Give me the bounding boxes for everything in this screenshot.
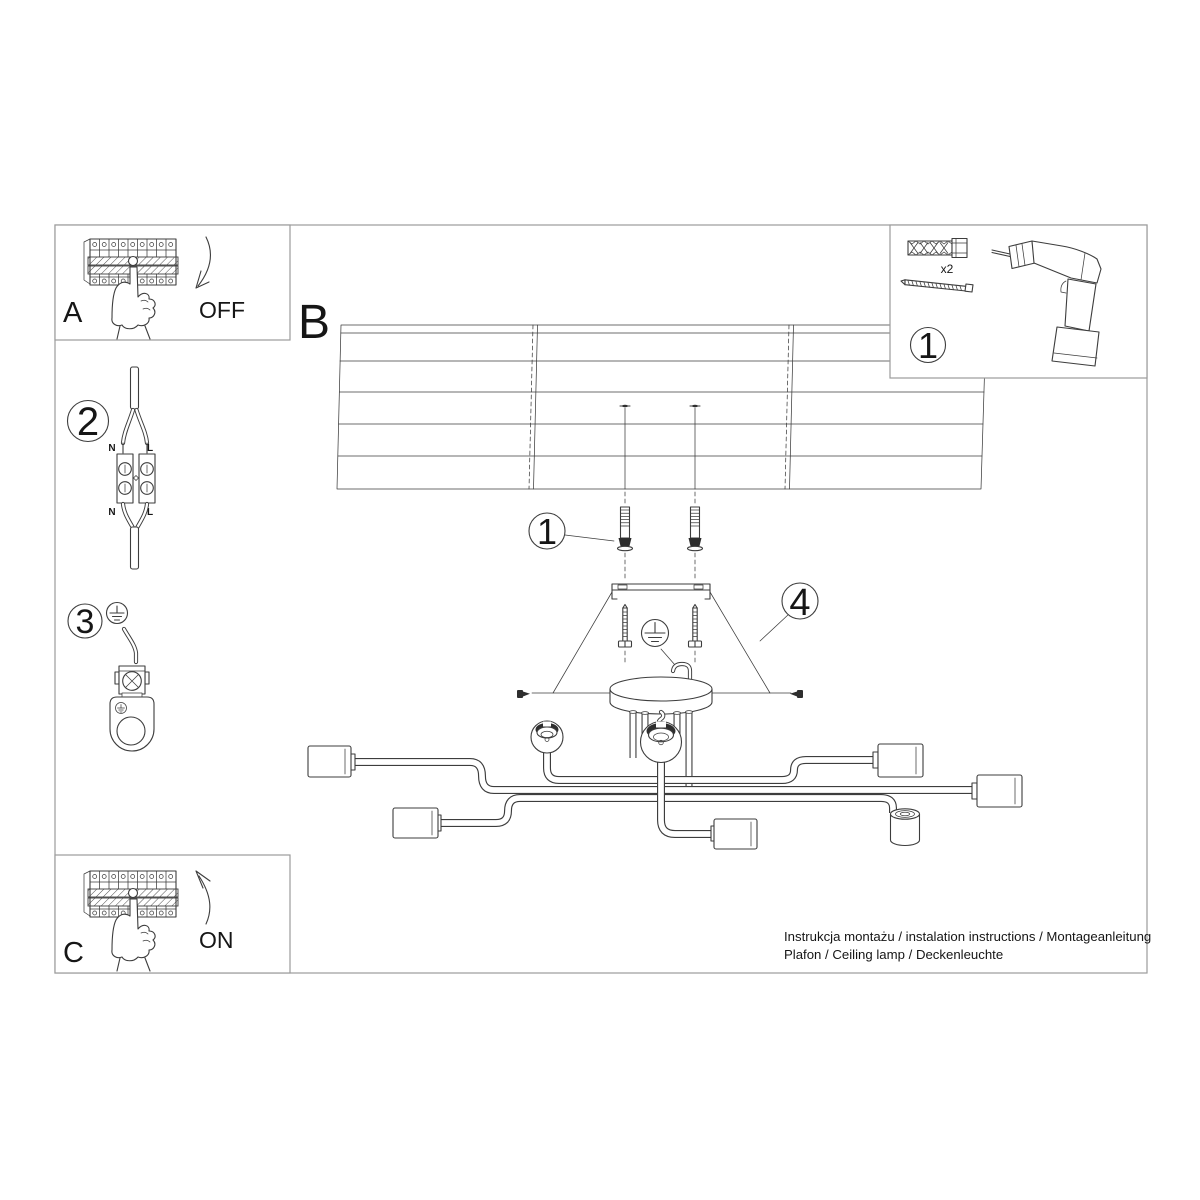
cable-icon: [131, 367, 139, 409]
socket-head: [873, 744, 923, 777]
ceiling-panels: [337, 325, 986, 489]
step-b-label: B: [298, 296, 330, 349]
callout-parts-number: 1: [918, 325, 938, 366]
label-live-top: L: [147, 443, 153, 454]
socket-head: [393, 808, 441, 838]
step-a-label: A: [63, 297, 83, 329]
wall-plug-icon: [908, 239, 967, 258]
socket-head: [711, 819, 757, 849]
label-neutral-top: N: [108, 443, 115, 454]
callout-wall-plug-number: 1: [537, 511, 557, 552]
caption-line2: Plafon / Ceiling lamp / Deckenleuchte: [784, 947, 1003, 962]
center-socket-cup: [641, 722, 682, 763]
callout-canopy-number: 4: [789, 582, 810, 624]
plug-quantity: x2: [941, 262, 954, 276]
callout-wiring-number: 2: [77, 400, 99, 444]
step-a-box: A OFF: [55, 225, 290, 340]
canopy: [610, 677, 712, 714]
installation-diagram: B: [0, 0, 1200, 1200]
ground-symbol-icon: [107, 603, 128, 624]
cable-icon: [131, 527, 139, 569]
step-c-box: C ON: [55, 855, 290, 973]
parts-box: x2: [890, 225, 1147, 378]
socket-head: [972, 775, 1022, 807]
socket-head: [308, 746, 355, 777]
label-neutral-bottom: N: [108, 507, 115, 518]
left-socket-cup: [531, 721, 563, 753]
socket-base: [110, 693, 154, 751]
callout-ground-number: 3: [76, 603, 95, 641]
instruction-sheet: B: [0, 0, 1200, 1200]
caption-line1: Instrukcja montażu / instalation instruc…: [784, 929, 1151, 944]
step-a-state: OFF: [199, 297, 245, 323]
ground-terminal-icon: [115, 666, 149, 694]
step-c-label: C: [63, 937, 84, 969]
step-c-state: ON: [199, 927, 234, 953]
ground-symbol-icon: [116, 703, 127, 714]
down-socket-cylinder: [891, 809, 920, 846]
